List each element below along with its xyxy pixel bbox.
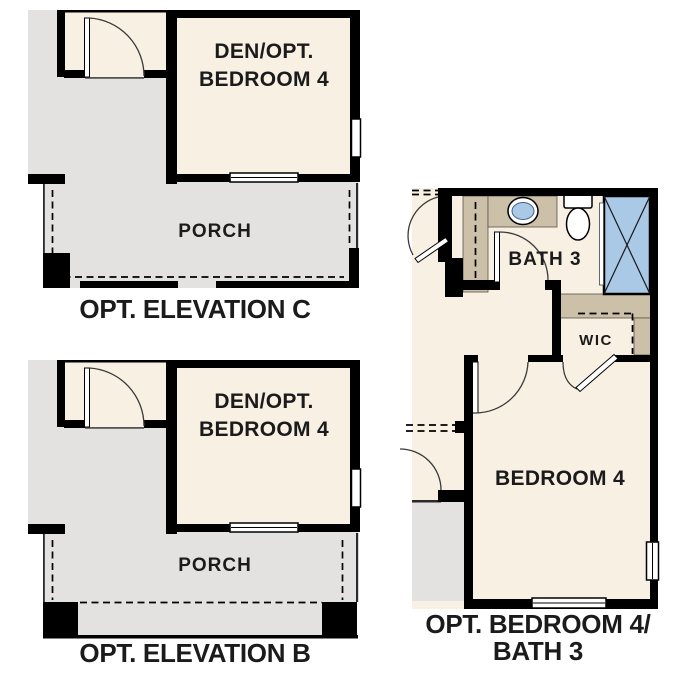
hall-floor: [28, 427, 166, 534]
wall-segment: [166, 10, 360, 18]
plan-elevation-b: DEN/OPT. BEDROOM 4 PORCH OPT. ELEVATION …: [28, 360, 361, 668]
sink-basin: [512, 203, 534, 220]
porch-edge-wall: [216, 281, 350, 288]
wall-segment: [438, 490, 464, 502]
wall-segment: [144, 420, 166, 428]
porch-post: [322, 602, 357, 637]
wall-segment: [144, 70, 166, 78]
porch-edge-line: [356, 183, 358, 249]
door-leaf: [495, 232, 500, 282]
wall-segment: [445, 258, 463, 297]
adjacent-house-area: [412, 502, 464, 601]
window: [352, 469, 361, 507]
plan-caption-line2: BATH 3: [493, 636, 583, 666]
plan-bedroom4-bath3: BATH 3 WIC BEDROOM 4 OPT. BEDROOM 4/ BAT…: [400, 188, 659, 666]
room-label-bedroom: BEDROOM 4: [495, 467, 625, 490]
plan-elevation-c: DEN/OPT. BEDROOM 4 PORCH OPT. ELEVATION …: [28, 10, 361, 324]
room-edge-line: [412, 500, 441, 503]
wall-segment: [438, 188, 658, 196]
room-label-den-line1: DEN/OPT.: [214, 40, 313, 63]
porch-post: [43, 602, 78, 637]
wic-wall-band: [634, 318, 652, 355]
wall-segment: [166, 10, 177, 184]
wall-segment: [166, 360, 360, 368]
door-leaf: [85, 18, 90, 77]
room-label-bath: BATH 3: [508, 249, 581, 270]
wall-segment: [455, 421, 464, 433]
door-threshold: [85, 77, 144, 79]
room-label-porch: PORCH: [178, 555, 252, 576]
toilet-bowl: [567, 208, 590, 240]
toilet-tank: [564, 194, 592, 208]
window: [352, 119, 361, 157]
wall-segment: [57, 360, 65, 427]
wall-segment: [473, 355, 478, 362]
porch-edge-line: [43, 534, 45, 602]
wall-segment: [438, 196, 452, 262]
floorplan-drawing: DEN/OPT. BEDROOM 4 PORCH OPT. ELEVATION …: [0, 0, 687, 687]
plan-caption: OPT. ELEVATION C: [79, 294, 311, 324]
wall-segment: [464, 355, 473, 599]
room-label-porch: PORCH: [178, 221, 252, 242]
door-threshold: [85, 427, 144, 429]
wall-segment: [445, 280, 500, 290]
adjacent-house-area: [28, 10, 57, 77]
hall-floor: [28, 77, 166, 184]
adjacent-house-area: [28, 360, 57, 427]
room-label-den-line2: BEDROOM 4: [199, 68, 329, 91]
porch-edge-line: [356, 533, 358, 602]
den-floor: [166, 10, 360, 182]
wall-segment: [612, 355, 658, 362]
plan-caption: OPT. ELEVATION B: [79, 638, 310, 668]
room-label-den-line2: BEDROOM 4: [199, 418, 329, 441]
porch-edge-line: [43, 184, 45, 253]
wic-wall-band: [560, 294, 652, 318]
den-floor: [166, 360, 360, 532]
porch-post: [43, 253, 70, 288]
porch-post: [349, 248, 359, 288]
plan-caption-line1: OPT. BEDROOM 4/: [425, 609, 650, 639]
wall-segment: [64, 70, 85, 78]
door-leaf: [85, 368, 90, 427]
entry-floor: [57, 10, 166, 77]
wall-segment: [528, 355, 563, 362]
room-label-den-line1: DEN/OPT.: [214, 390, 313, 413]
wall-segment: [28, 524, 65, 534]
wall-segment: [545, 280, 561, 290]
wall-segment: [28, 174, 65, 184]
wall-segment: [57, 10, 170, 13]
shower-door-track: [600, 203, 604, 285]
door-leaf: [473, 362, 479, 413]
wall-segment: [64, 420, 85, 428]
wall-segment: [552, 290, 561, 362]
porch-edge-wall: [80, 281, 178, 288]
room-label-wic: WIC: [579, 332, 613, 349]
floorplan-sheet: DEN/OPT. BEDROOM 4 PORCH OPT. ELEVATION …: [0, 0, 687, 687]
wall-segment: [57, 360, 170, 363]
wall-segment: [166, 360, 177, 534]
porch-slab: [43, 602, 352, 635]
wall-segment: [57, 10, 65, 77]
entry-floor: [57, 360, 166, 427]
